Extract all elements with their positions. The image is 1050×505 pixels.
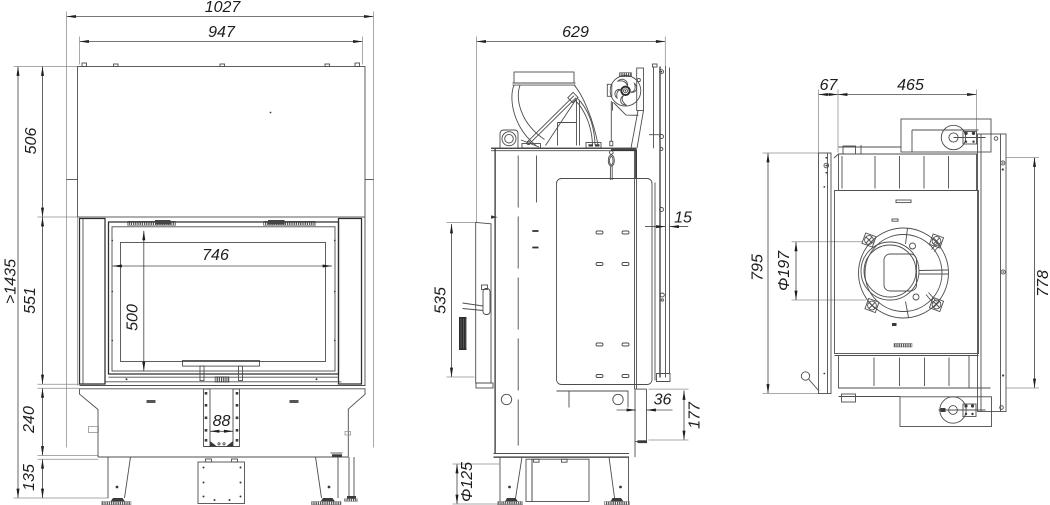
svg-text:465: 465 — [897, 77, 924, 94]
svg-text:778: 778 — [1035, 270, 1050, 297]
svg-text:88: 88 — [213, 413, 231, 430]
svg-text:177: 177 — [687, 401, 704, 429]
svg-text:240: 240 — [21, 406, 38, 434]
svg-text:947: 947 — [208, 24, 236, 41]
svg-text:535: 535 — [433, 287, 450, 314]
svg-text:Φ125: Φ125 — [459, 462, 476, 502]
svg-text:36: 36 — [654, 392, 672, 409]
svg-text:>1435: >1435 — [3, 259, 20, 304]
svg-text:506: 506 — [23, 128, 40, 155]
svg-text:746: 746 — [202, 247, 229, 264]
svg-text:67: 67 — [820, 77, 839, 94]
svg-text:629: 629 — [562, 24, 589, 41]
svg-text:551: 551 — [22, 287, 39, 314]
svg-text:15: 15 — [674, 210, 692, 227]
svg-text:1027: 1027 — [205, 0, 242, 16]
svg-text:135: 135 — [21, 464, 38, 491]
svg-text:Φ197: Φ197 — [776, 250, 793, 291]
svg-text:795: 795 — [750, 254, 767, 281]
svg-text:500: 500 — [125, 304, 142, 331]
